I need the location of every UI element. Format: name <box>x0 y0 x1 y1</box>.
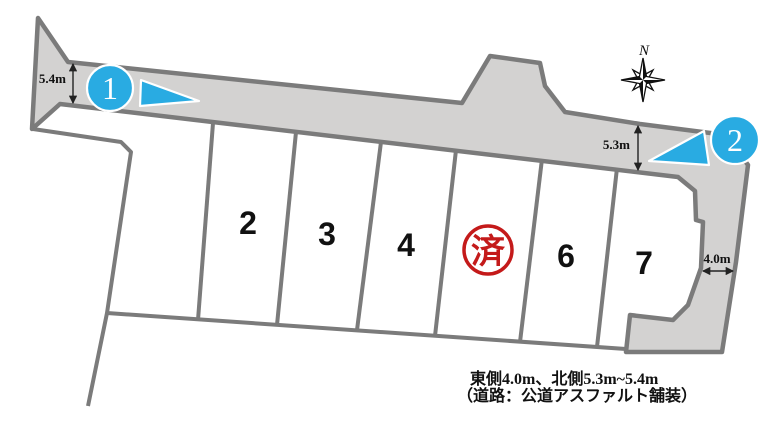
lot-divider-line <box>198 123 213 320</box>
measure-label-5-3: 5.3m <box>603 137 630 152</box>
lot-divider-line <box>597 168 617 347</box>
measure-label-5-4: 5.4m <box>39 71 66 86</box>
measure-label-4-0: 4.0m <box>703 251 730 266</box>
compass-east-dark-half <box>643 80 665 84</box>
photo-marker-2-label: 2 <box>727 122 743 158</box>
lot-label-2: 2 <box>239 205 257 241</box>
sold-stamp-text: 済 <box>471 233 506 271</box>
west-boundary-line <box>33 129 131 406</box>
lot-label-3: 3 <box>318 216 336 252</box>
road-note-line-2: （道路：公道アスファルト舗装） <box>457 386 697 405</box>
road-note-line-1: 東側4.0m、北側5.3m~5.4m <box>470 369 659 388</box>
plot-map-svg: 2 3 4 6 7 済 5.4m 5.3m 4.0m 1 <box>0 0 760 441</box>
lot-divider-line <box>435 150 456 336</box>
lot-label-6: 6 <box>557 238 575 274</box>
photo-marker-1-label: 1 <box>102 70 118 106</box>
sold-stamp: 済 <box>464 226 512 274</box>
compass-rose: N <box>621 43 665 102</box>
lot-divider-line <box>357 142 381 330</box>
lot-divider-line <box>520 159 542 342</box>
compass-south-dark-half <box>640 80 644 102</box>
lot-label-7: 7 <box>635 245 653 281</box>
lot-divider-line <box>277 132 296 325</box>
lot-label-4: 4 <box>397 227 415 263</box>
compass-north-dark-half <box>643 58 647 80</box>
compass-north-label: N <box>638 43 650 59</box>
compass-west-dark-half <box>621 77 643 81</box>
lot-map-diagram: 2 3 4 6 7 済 5.4m 5.3m 4.0m 1 <box>0 0 760 441</box>
south-boundary-line <box>107 313 626 349</box>
